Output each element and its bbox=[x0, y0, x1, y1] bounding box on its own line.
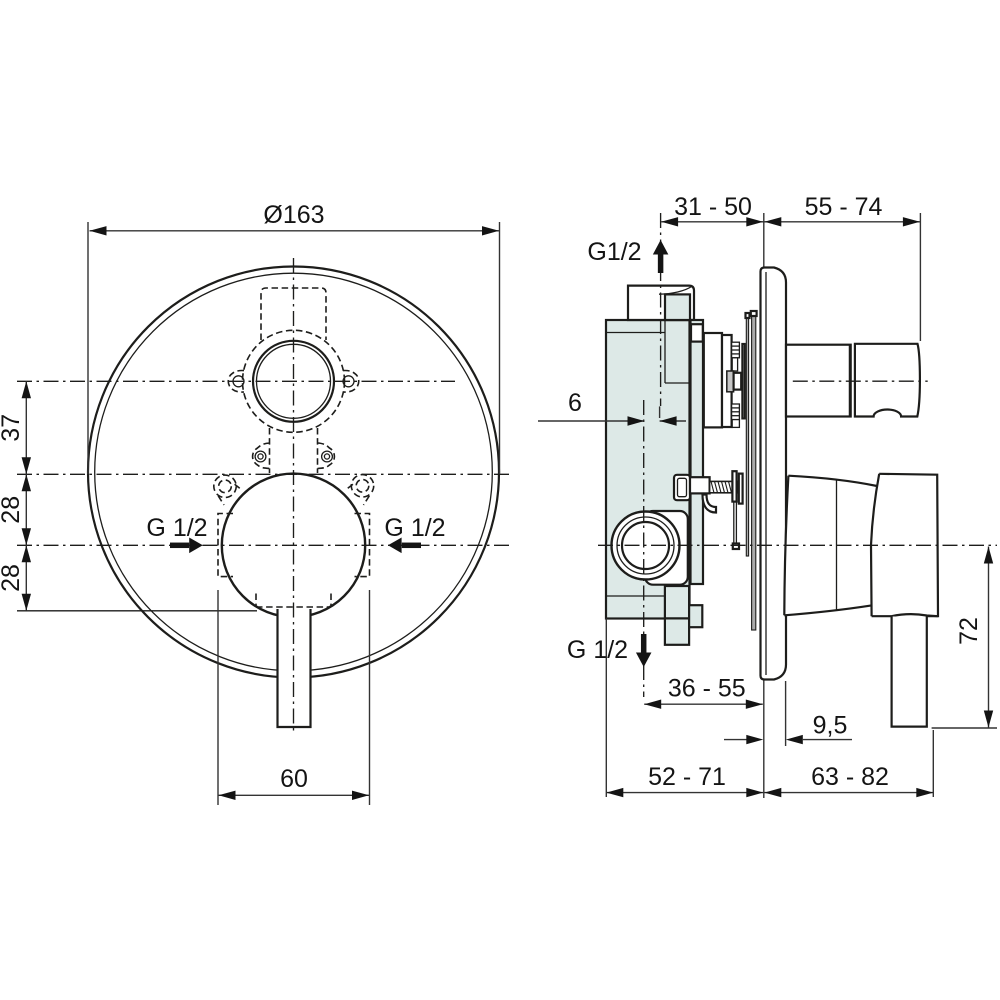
svg-text:Ø163: Ø163 bbox=[263, 201, 324, 229]
svg-text:28: 28 bbox=[0, 496, 25, 524]
svg-text:31 - 50: 31 - 50 bbox=[674, 193, 752, 221]
svg-text:28: 28 bbox=[0, 564, 25, 592]
svg-text:52 - 71: 52 - 71 bbox=[648, 763, 726, 791]
svg-text:G 1/2: G 1/2 bbox=[567, 636, 628, 664]
svg-text:72: 72 bbox=[955, 617, 983, 645]
svg-text:G1/2: G1/2 bbox=[587, 238, 641, 266]
svg-text:6: 6 bbox=[568, 389, 582, 417]
svg-text:37: 37 bbox=[0, 414, 25, 442]
svg-text:G 1/2: G 1/2 bbox=[146, 514, 207, 542]
svg-text:63 - 82: 63 - 82 bbox=[811, 763, 889, 791]
svg-text:60: 60 bbox=[280, 765, 308, 793]
svg-text:G 1/2: G 1/2 bbox=[384, 514, 445, 542]
svg-text:36 - 55: 36 - 55 bbox=[668, 675, 746, 703]
svg-text:9,5: 9,5 bbox=[813, 712, 848, 740]
svg-text:55 - 74: 55 - 74 bbox=[805, 193, 883, 221]
